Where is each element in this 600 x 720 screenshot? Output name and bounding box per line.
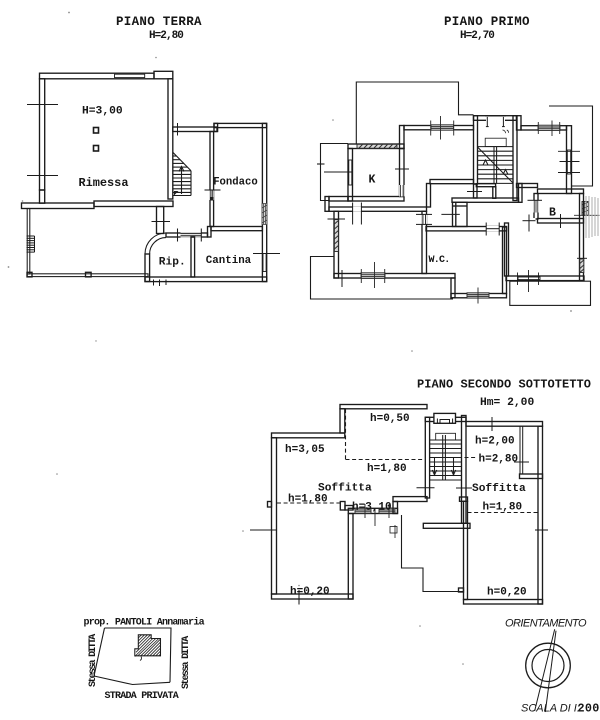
svg-text:h=0,20: h=0,20 [290,586,330,598]
svg-text:Fondaco: Fondaco [213,176,258,188]
svg-text:h=1,80: h=1,80 [288,494,328,506]
svg-text:ORIENTAMENTO: ORIENTAMENTO [505,618,587,630]
svg-text:PIANO SECONDO SOTTOTETTO: PIANO SECONDO SOTTOTETTO [417,378,591,392]
svg-text:h=0,50: h=0,50 [370,413,410,425]
svg-text:PIANO PRIMO: PIANO PRIMO [444,15,530,29]
svg-text:h=2,00: h=2,00 [475,436,515,448]
svg-text:Stessa DITTA: Stessa DITTA [181,636,192,689]
svg-text:W.C.: W.C. [429,255,450,266]
svg-text:Rip.: Rip. [159,257,186,269]
svg-text:prop. PANTOLI Annamaria: prop. PANTOLI Annamaria [84,617,205,629]
svg-text:h=0,20: h=0,20 [487,587,527,599]
svg-text:h=3,10: h=3,10 [352,502,392,514]
svg-text:200: 200 [578,702,600,716]
svg-text:STRADA PRIVATA: STRADA PRIVATA [105,691,179,702]
svg-text:Soffitta: Soffitta [472,483,526,495]
svg-text:H=2,80: H=2,80 [149,30,183,42]
svg-text:Hm= 2,00: Hm= 2,00 [480,397,534,409]
svg-text:K: K [369,174,376,187]
svg-text:h=2,80: h=2,80 [479,454,519,466]
svg-text:h=1,80: h=1,80 [483,502,523,514]
svg-text:h=3,05: h=3,05 [285,444,325,456]
svg-text:H=2,70: H=2,70 [460,30,494,42]
svg-text:H=3,00: H=3,00 [82,106,123,118]
svg-text:Stessa DITTA: Stessa DITTA [88,634,99,687]
svg-text:h=1,80: h=1,80 [367,463,407,475]
svg-text:Rimessa: Rimessa [79,176,129,190]
svg-text:Cantina: Cantina [206,255,252,267]
svg-text:SCALA DI I:: SCALA DI I: [521,703,580,715]
svg-text:B: B [549,207,556,220]
svg-text:PIANO TERRA: PIANO TERRA [116,15,202,29]
